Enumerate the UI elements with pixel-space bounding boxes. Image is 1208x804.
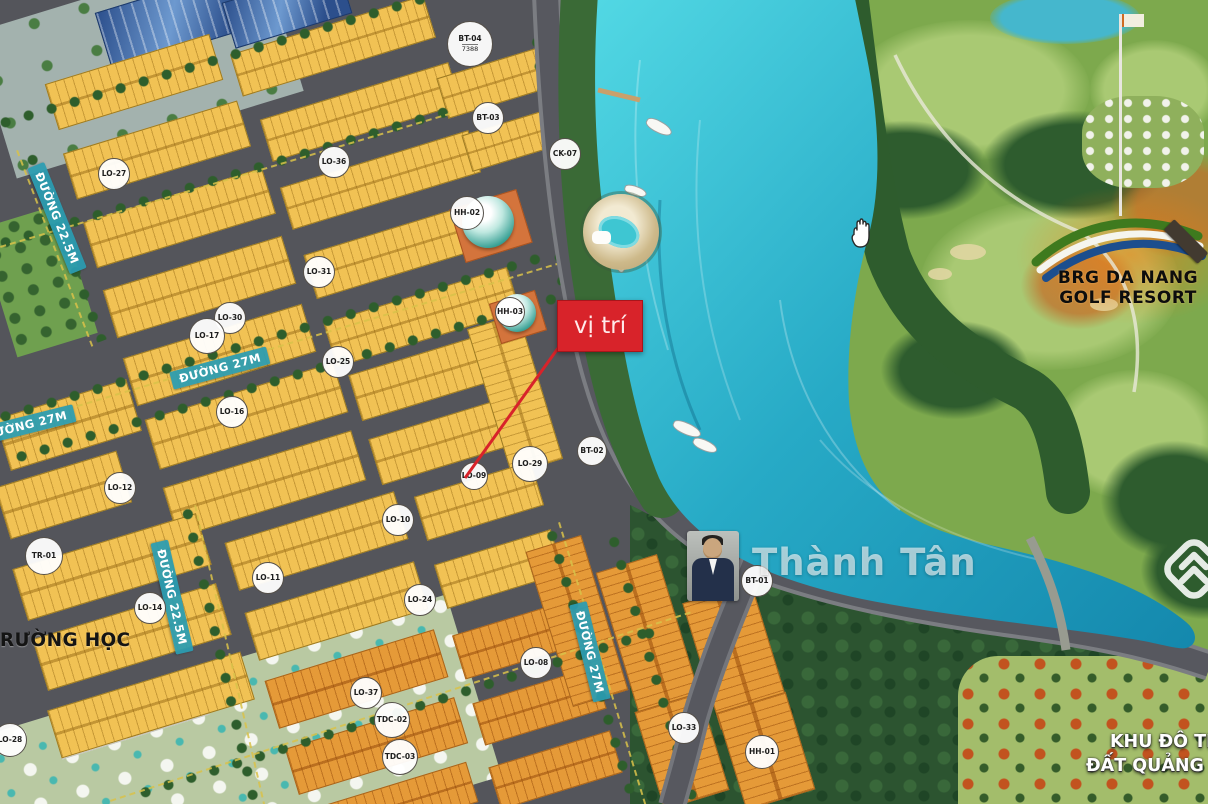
golf-flagpole <box>1119 14 1122 216</box>
agent-face <box>703 538 722 559</box>
lot-code: LO-29 <box>518 460 543 468</box>
project-name-label: KHU ĐÔ THỊ ĐẤT QUẢNG RIVERS <box>1086 731 1208 778</box>
lot-badge: BT-04 7388 <box>447 21 493 67</box>
lot-badge: LO-31 <box>303 256 335 288</box>
lot-code: TDC-03 <box>385 753 416 761</box>
lot-code: CK-07 <box>553 150 577 158</box>
lot-code: BT-04 <box>458 35 481 43</box>
lot-code: TR-01 <box>32 552 56 560</box>
lot-code: LO-08 <box>524 659 549 667</box>
lot-code: LO-16 <box>220 408 245 416</box>
lot-badge: LO-33 <box>668 712 700 744</box>
hand-cursor-icon <box>846 216 876 250</box>
lot-badge: TDC-03 <box>382 739 418 775</box>
lot-badge: LO-29 <box>512 446 548 482</box>
lot-code: LO-31 <box>307 268 332 276</box>
lot-badge: LO-11 <box>252 562 284 594</box>
lot-badge: BT-02 <box>577 436 607 466</box>
lot-badge: LO-17 <box>189 318 225 354</box>
lot-code: LO-14 <box>138 604 163 612</box>
lot-badge: TDC-02 <box>374 702 410 738</box>
golf-resort-name-line2: GOLF RESORT <box>1038 288 1208 308</box>
lot-code: HH-02 <box>454 209 480 217</box>
lot-badge: HH-02 <box>450 196 484 230</box>
lot-badge: LO-14 <box>134 592 166 624</box>
lot-badge: LO-27 <box>98 158 130 190</box>
lot-code: LO-11 <box>256 574 281 582</box>
school-label: TRƯỜNG HỌC <box>0 630 130 651</box>
lot-code: LO-25 <box>326 358 351 366</box>
watermark-name: Thành Tân <box>752 541 977 584</box>
lot-code: BT-03 <box>476 114 499 122</box>
lot-code: BT-02 <box>580 447 603 455</box>
location-marker[interactable]: vị trí <box>557 300 643 352</box>
marina-pool-deck <box>583 194 659 270</box>
lot-code: LO-27 <box>102 170 127 178</box>
golf-resort-name-line1: BRG DA NANG <box>1038 268 1208 288</box>
lot-badge: LO-36 <box>318 146 350 178</box>
lot-area: 7388 <box>462 44 479 53</box>
lot-code: LO-17 <box>195 332 220 340</box>
golf-flag <box>1122 14 1144 27</box>
lot-badge: LO-08 <box>520 647 552 679</box>
site-watermark-logo <box>1158 533 1208 613</box>
lot-code: LO-30 <box>218 314 243 322</box>
lot-code: HH-01 <box>749 748 775 756</box>
lot-badge: LO-25 <box>322 346 354 378</box>
project-name-line2: ĐẤT QUẢNG RIVERS <box>1086 755 1208 779</box>
pool-hut <box>592 231 611 244</box>
lot-badge: HH-01 <box>745 735 779 769</box>
agent-photo <box>687 531 739 601</box>
lot-badge: HH-03 <box>495 297 525 327</box>
lot-code: LO-10 <box>386 516 411 524</box>
lot-code: LO-28 <box>0 736 22 744</box>
lot-code: TDC-02 <box>377 716 408 724</box>
project-name-line1: KHU ĐÔ THỊ <box>1086 731 1208 755</box>
lot-code: LO-36 <box>322 158 347 166</box>
lot-badge: CK-07 <box>549 138 581 170</box>
lot-badge: LO-24 <box>404 584 436 616</box>
lot-code: LO-24 <box>408 596 433 604</box>
lot-code: HH-03 <box>497 308 523 316</box>
lot-badge: LO-37 <box>350 677 382 709</box>
lot-code: LO-12 <box>108 484 133 492</box>
lot-badge: LO-10 <box>382 504 414 536</box>
lot-code: LO-37 <box>354 689 379 697</box>
lot-badge: LO-12 <box>104 472 136 504</box>
map-canvas[interactable]: BRG DA NANG GOLF RESORT ĐƯỜNG 22.5MĐƯỜNG… <box>0 0 1208 804</box>
lot-badge: LO-16 <box>216 396 248 428</box>
lot-code: LO-33 <box>672 724 697 732</box>
lot-badge: BT-03 <box>472 102 504 134</box>
lot-badge: TR-01 <box>25 537 63 575</box>
